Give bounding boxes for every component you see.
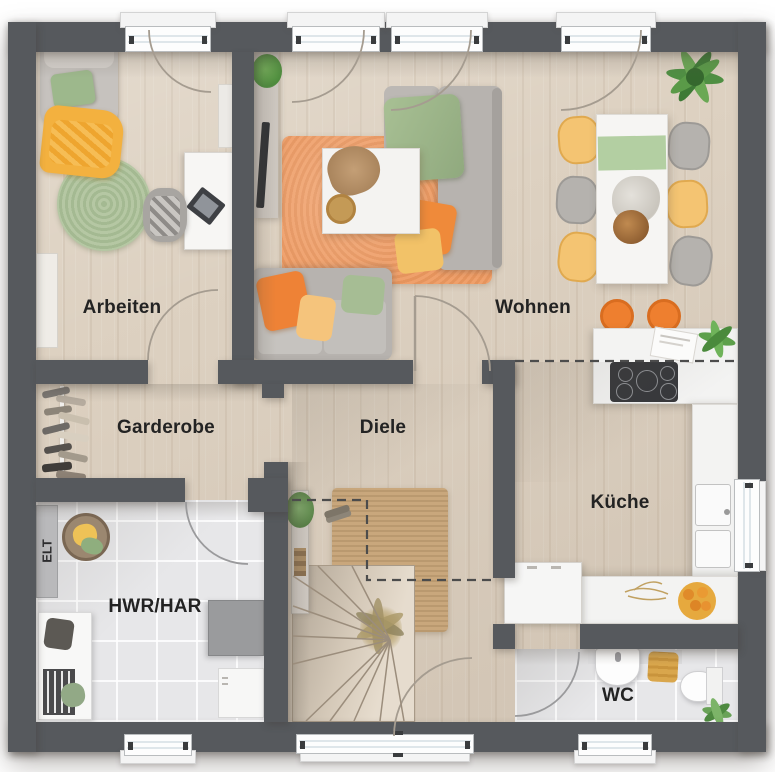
peach-pillow [295, 294, 337, 343]
window-wc [578, 734, 652, 756]
wall-wardrobe-stub [262, 384, 284, 398]
dining-chair-gray [555, 175, 599, 225]
yellow-throw-folds [48, 119, 114, 169]
washer-column [38, 612, 92, 720]
room-label-diele: Diele [360, 417, 406, 439]
stair-grass-plant [352, 598, 408, 662]
faucet [724, 509, 730, 515]
dryer [218, 668, 264, 718]
green-cushion [50, 69, 96, 109]
room-label-garderobe: Garderobe [117, 417, 215, 439]
wall-hall-kitchen [493, 360, 515, 578]
room-label-kueche: Küche [590, 492, 649, 514]
washing-machine [208, 600, 264, 656]
dining-chair-yellow [556, 115, 601, 166]
towel [647, 651, 679, 683]
laundry-basket [62, 513, 110, 561]
green-pillow-2 [340, 274, 385, 316]
wall-exterior-left [8, 22, 36, 752]
wall-hwr-jamb [248, 478, 288, 512]
sofa-backrest [492, 88, 502, 268]
wall-office-living [232, 52, 254, 384]
fruit-bowl [678, 582, 716, 620]
office-cabinet [36, 253, 58, 348]
floor-plan: Arbeiten Wohnen Garderobe Diele Küche HW… [0, 0, 775, 772]
wall-kitchen-wc [580, 624, 738, 649]
dining-chair-yellow [665, 179, 709, 229]
room-label-elt: ELT [40, 539, 55, 563]
wall-exterior-right [738, 22, 766, 752]
front-door [296, 734, 474, 754]
window-dining [561, 26, 651, 52]
window-living-2 [391, 26, 483, 52]
bronze-bowl [613, 210, 649, 244]
books [294, 548, 306, 576]
counter-plant [698, 320, 738, 362]
desk-chair-cushion [150, 196, 180, 236]
room-label-arbeiten: Arbeiten [83, 297, 162, 319]
window-office [125, 26, 211, 52]
wall-wardrobe-hwr [36, 478, 185, 502]
yellow-pillow [394, 227, 445, 274]
cooktop [610, 362, 678, 402]
wall-shelf [218, 84, 233, 148]
console-plant [252, 54, 282, 88]
window-living-1 [292, 26, 380, 52]
dining-chair-gray [666, 121, 711, 172]
table-runner [598, 135, 667, 170]
sink-basin [695, 484, 731, 526]
room-label-wc: WC [602, 685, 634, 707]
console-plant-2 [286, 492, 314, 528]
wc-sink [595, 648, 640, 686]
wall-living-hall [218, 360, 413, 384]
palm-plant [664, 46, 726, 108]
wall-wc-left [493, 624, 515, 649]
window-hwr [124, 734, 192, 756]
room-label-hwr: HWR/HAR [108, 596, 201, 618]
window-kitchen [734, 479, 760, 572]
room-label-wohnen: Wohnen [495, 297, 571, 319]
fridge [504, 562, 582, 624]
sink-basin [695, 530, 731, 568]
wall-office-wardrobe [36, 360, 148, 384]
gold-tray [326, 194, 356, 224]
